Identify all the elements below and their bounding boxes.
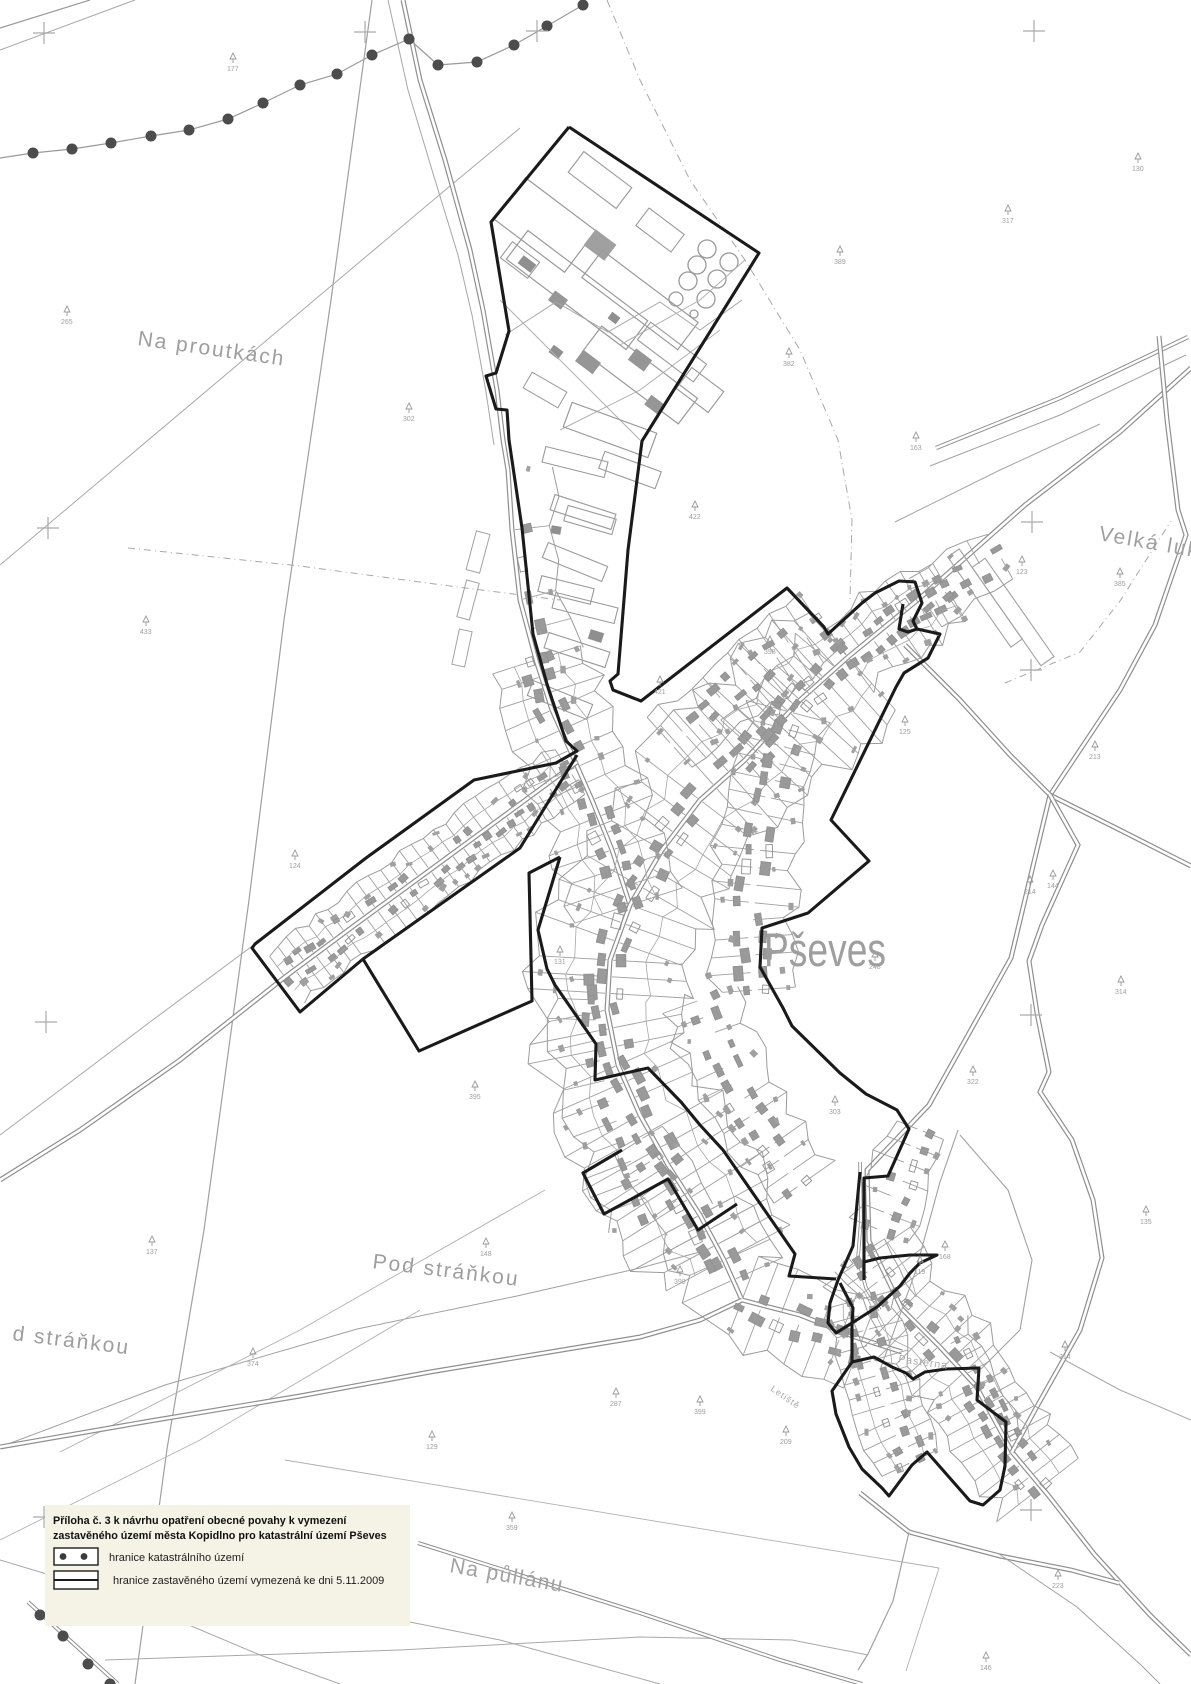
- svg-text:213: 213: [1089, 754, 1101, 761]
- svg-text:314: 314: [1115, 989, 1127, 996]
- svg-text:135: 135: [1140, 1219, 1152, 1226]
- svg-text:Pševes: Pševes: [764, 923, 886, 976]
- svg-text:317: 317: [1002, 218, 1014, 225]
- svg-text:287: 287: [610, 1401, 622, 1408]
- svg-text:137: 137: [146, 1249, 158, 1256]
- svg-text:398: 398: [764, 649, 776, 656]
- svg-text:130: 130: [1132, 166, 1144, 173]
- svg-text:163: 163: [910, 445, 922, 452]
- svg-text:382: 382: [783, 361, 795, 368]
- svg-text:398: 398: [674, 1279, 686, 1286]
- svg-text:124: 124: [289, 863, 301, 870]
- svg-text:168: 168: [939, 1254, 951, 1261]
- svg-text:hranice zastavěného území vyme: hranice zastavěného území vymezená ke dn…: [113, 1575, 384, 1587]
- svg-text:322: 322: [967, 1079, 979, 1086]
- svg-text:123: 123: [1016, 569, 1028, 576]
- svg-text:146: 146: [980, 1665, 992, 1672]
- svg-text:389: 389: [834, 259, 846, 266]
- svg-text:421: 421: [654, 689, 666, 696]
- svg-text:209: 209: [780, 1439, 792, 1446]
- svg-text:Příloha č. 3 k návrhu opatření: Příloha č. 3 k návrhu opatření obecné po…: [53, 1515, 347, 1527]
- svg-text:374: 374: [247, 1361, 259, 1368]
- svg-text:131: 131: [554, 959, 566, 966]
- svg-text:359: 359: [506, 1525, 518, 1532]
- svg-text:303: 303: [829, 1109, 841, 1116]
- svg-text:148: 148: [480, 1251, 492, 1258]
- svg-text:223: 223: [1052, 1583, 1064, 1590]
- svg-text:129: 129: [426, 1444, 438, 1451]
- svg-text:265: 265: [61, 319, 73, 326]
- svg-text:214: 214: [1024, 889, 1036, 896]
- svg-text:395: 395: [469, 1094, 481, 1101]
- svg-text:119: 119: [914, 1269, 925, 1276]
- svg-text:hranice katastrálního území: hranice katastrálního území: [109, 1552, 244, 1564]
- svg-text:433: 433: [140, 629, 152, 636]
- svg-text:zastavěného území města Kopidl: zastavěného území města Kopidlno pro kat…: [53, 1530, 387, 1542]
- svg-text:144: 144: [1047, 883, 1059, 890]
- svg-text:399: 399: [694, 1409, 706, 1416]
- svg-text:385: 385: [1114, 581, 1126, 588]
- svg-text:422: 422: [689, 514, 701, 521]
- svg-text:177: 177: [227, 66, 239, 73]
- svg-text:302: 302: [403, 416, 415, 423]
- svg-text:314: 314: [1059, 1354, 1071, 1361]
- svg-text:125: 125: [899, 729, 911, 736]
